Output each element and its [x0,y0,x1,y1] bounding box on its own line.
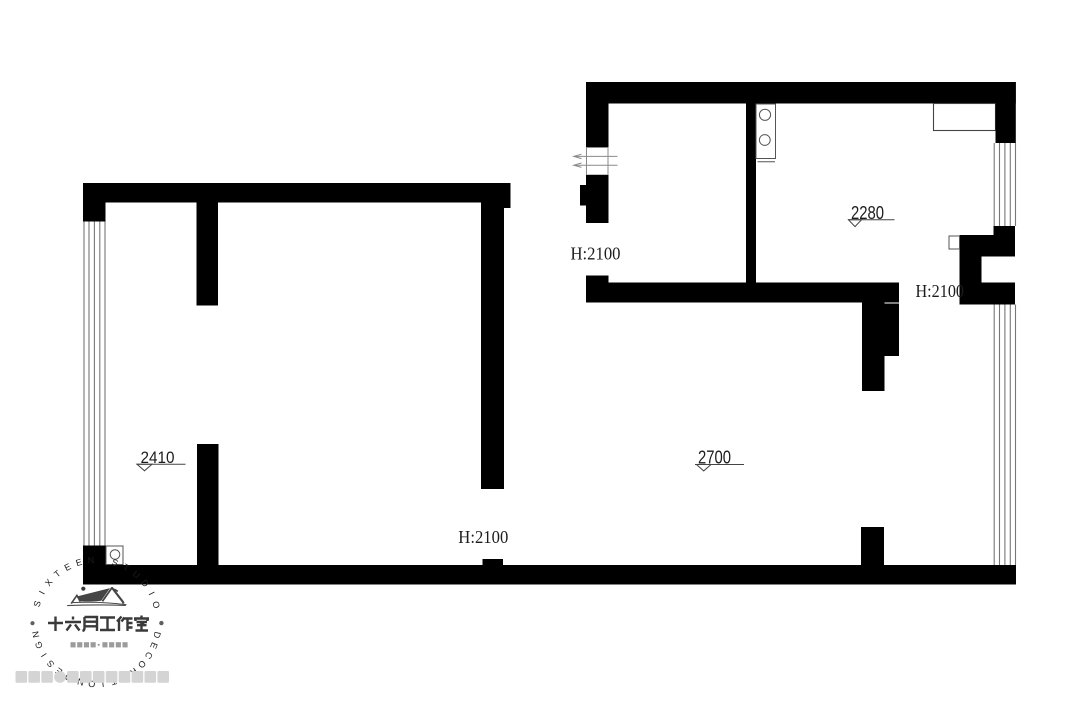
svg-text:H:2100: H:2100 [458,527,508,547]
svg-text:C: C [142,650,154,661]
svg-text:X: X [43,577,55,588]
svg-text:S: S [45,658,56,669]
svg-text:N: N [87,555,94,566]
svg-text:I: I [37,589,47,596]
svg-text:E: E [63,561,73,573]
svg-text:H:2100: H:2100 [571,244,621,264]
svg-text:H:2100: H:2100 [916,281,965,301]
svg-text:E: E [148,641,160,650]
svg-text:O: O [136,658,148,670]
svg-text:O: O [150,600,162,610]
svg-text:S: S [32,600,43,609]
svg-text:N: N [30,630,41,638]
svg-text:I: I [147,590,157,597]
svg-text:I: I [39,651,49,658]
svg-text:E: E [75,557,84,568]
svg-text:G: G [33,640,45,650]
svg-text:T: T [52,568,63,580]
svg-text:D: D [151,631,162,640]
